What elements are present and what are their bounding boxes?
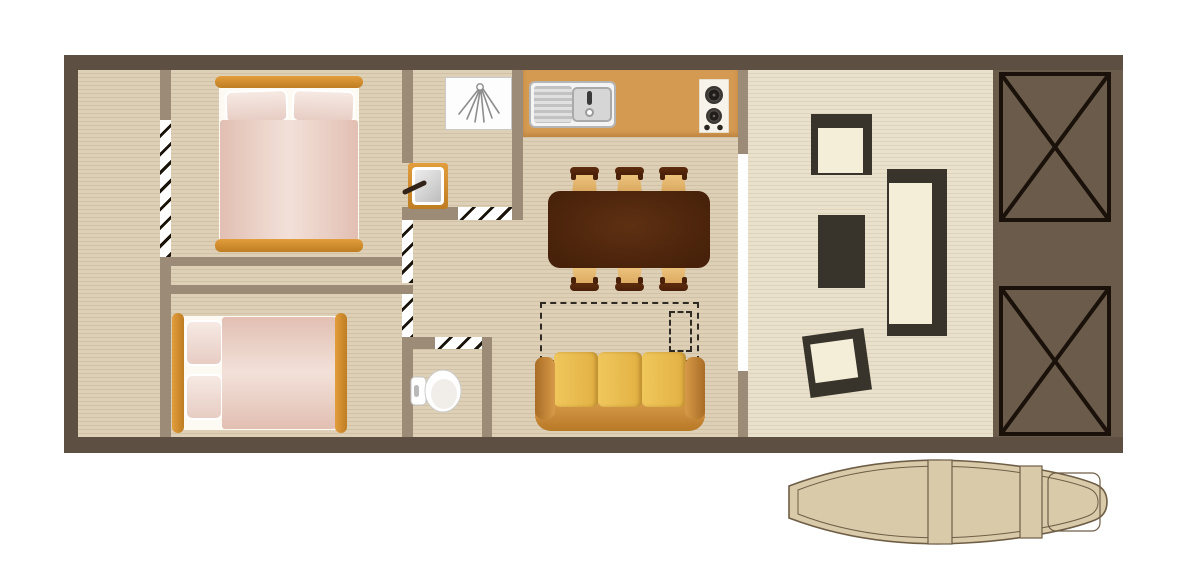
pillow <box>185 320 223 366</box>
sofa-cushion <box>554 352 598 407</box>
dining-chair <box>615 264 644 291</box>
washbasin-vanity <box>408 163 448 209</box>
bedroom1-bottom-wall <box>160 257 405 266</box>
dining-chair <box>570 264 599 291</box>
patio-chair-cushion <box>810 339 858 384</box>
sofa <box>535 352 705 431</box>
faucet-icon <box>402 179 430 195</box>
wc-door-hatch <box>435 337 482 349</box>
crossed-box-icon <box>999 286 1111 436</box>
patio-chair-cushion <box>818 128 863 173</box>
bedroom2-top-wall <box>171 285 413 294</box>
sofa-bed-outline-small <box>669 311 692 352</box>
pillow <box>224 89 288 124</box>
canoe-bench <box>928 460 952 544</box>
dining-chair <box>659 264 688 291</box>
outer-wall-top <box>64 55 1123 70</box>
sofa-cushion <box>642 352 686 407</box>
headboard <box>172 313 184 433</box>
corridor-wall-upper <box>160 70 171 120</box>
dining-table <box>548 191 710 268</box>
dining-chair <box>659 167 688 193</box>
chair-post <box>616 173 621 180</box>
chair-post <box>571 173 576 180</box>
canoe-bench <box>1020 466 1042 538</box>
sofa-arm-right <box>685 357 705 419</box>
kitchen-sink-unit <box>529 81 616 128</box>
patio-chair <box>811 114 872 175</box>
chair-back <box>615 283 644 291</box>
floor-plan <box>0 0 1200 586</box>
chair-post <box>660 277 665 284</box>
dining-chair <box>615 167 644 193</box>
shower-spray-icon <box>446 78 513 131</box>
chair-post <box>682 173 687 180</box>
sink-basin <box>572 87 612 122</box>
chair-post <box>660 173 665 180</box>
outer-wall-bottom <box>64 437 1123 453</box>
patio-side-table <box>818 215 865 288</box>
hall-window-hatch-upper <box>402 220 413 283</box>
patio-lounger <box>887 169 947 336</box>
duvet <box>222 317 336 429</box>
shower <box>445 77 512 130</box>
chair-post <box>682 277 687 284</box>
chair-post <box>638 173 643 180</box>
sink-drain <box>585 108 594 117</box>
duvet <box>220 120 358 246</box>
patio-lounger-cushion <box>889 183 932 324</box>
sofa-arm-left <box>535 357 555 419</box>
bed-double-2 <box>172 313 347 433</box>
bed-double-1 <box>215 76 363 252</box>
chair-back <box>570 283 599 291</box>
hall-window-hatch-lower <box>402 294 413 338</box>
outer-wall-left <box>64 55 78 453</box>
sink-faucet <box>587 91 592 105</box>
chair-post <box>593 277 598 284</box>
chair-post <box>593 173 598 180</box>
footboard <box>335 313 347 433</box>
bathroom-left-wall <box>402 70 413 163</box>
bathroom-right-wall <box>512 70 523 220</box>
chair-back <box>659 283 688 291</box>
pillow <box>291 89 355 124</box>
wc-top-wall-left <box>402 337 435 349</box>
headboard <box>215 76 363 88</box>
patio-chair <box>802 328 872 398</box>
toilet <box>410 368 464 414</box>
drainboard <box>534 86 572 123</box>
wc-right-wall <box>482 337 492 437</box>
canoe <box>778 453 1118 553</box>
footboard <box>215 239 363 252</box>
bathroom-door-hatch <box>458 207 512 220</box>
chair-post <box>616 277 621 284</box>
pillow <box>185 374 223 420</box>
chair-post <box>638 277 643 284</box>
hob-2-burner <box>699 79 729 133</box>
sofa-cushion <box>598 352 642 407</box>
terrace-door-opening <box>738 154 748 371</box>
corridor-wall-lower <box>160 257 171 437</box>
crossed-box-icon <box>999 72 1111 222</box>
dining-chair <box>570 167 599 193</box>
corridor-window-hatch <box>160 120 171 257</box>
chair-post <box>571 277 576 284</box>
